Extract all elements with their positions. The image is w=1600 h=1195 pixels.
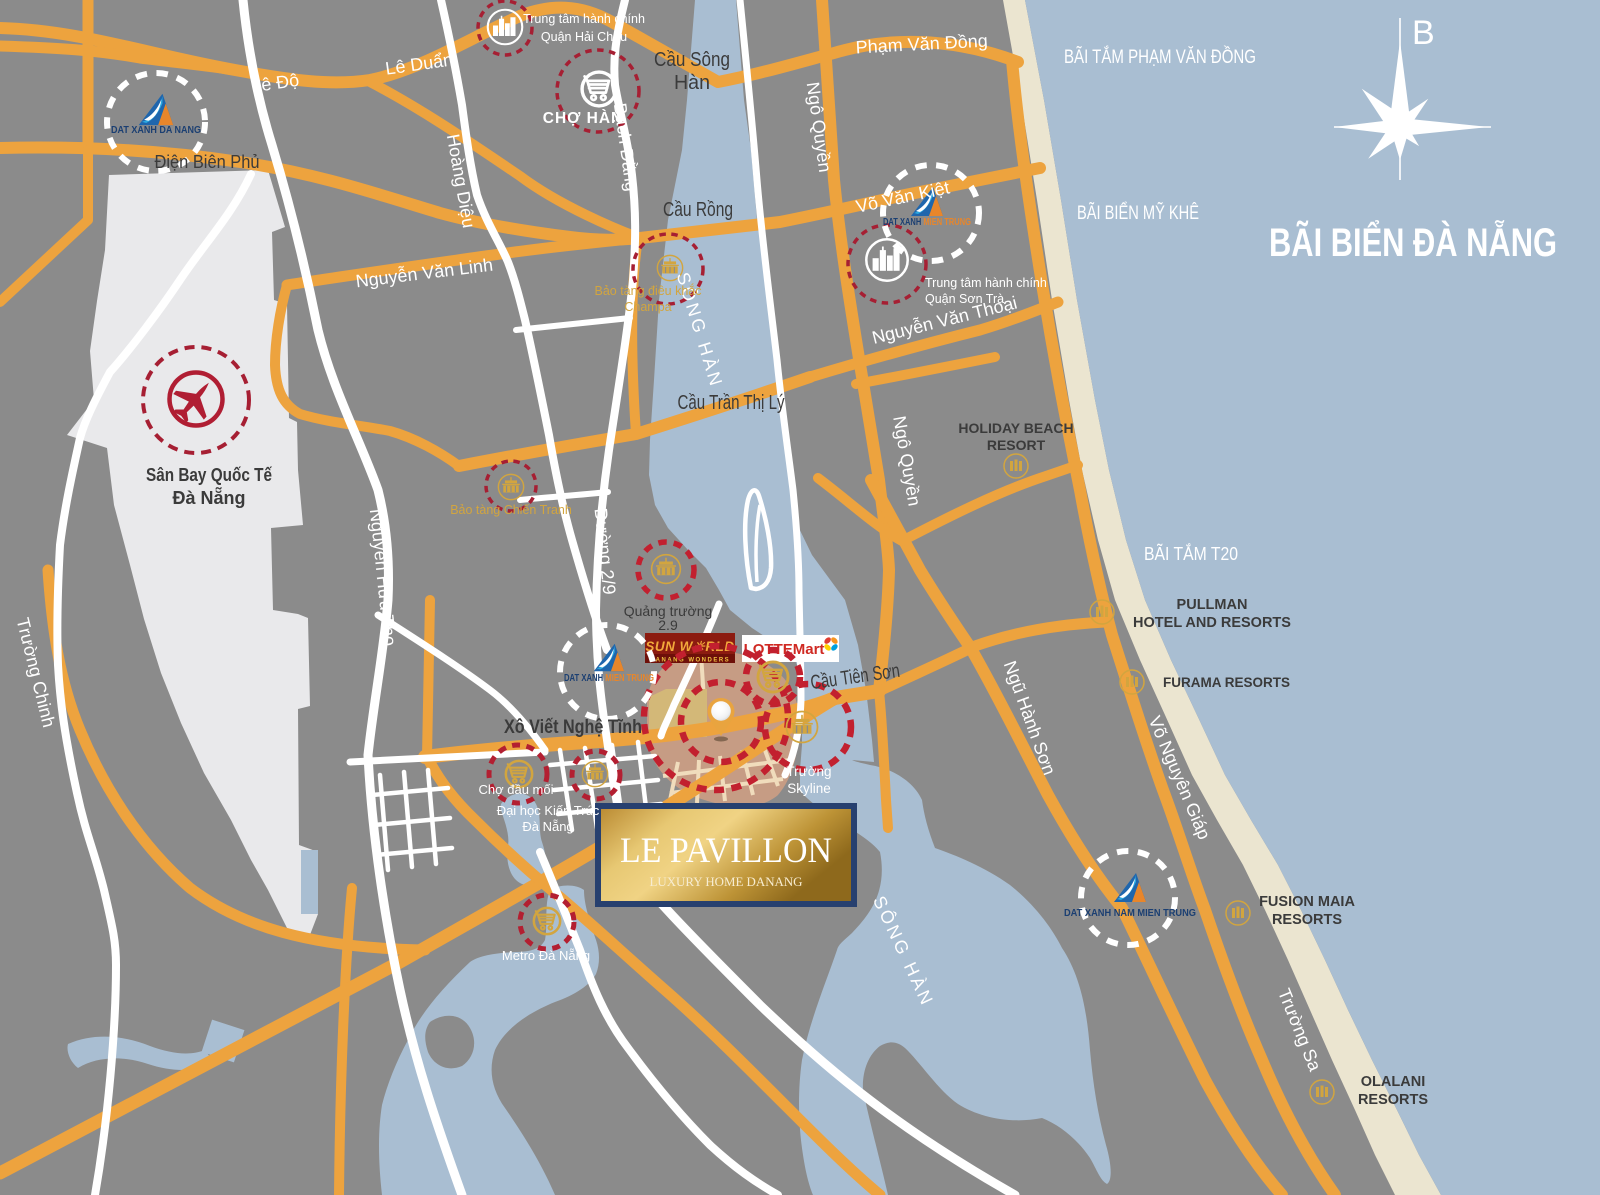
svg-text:CHỢ HÀN: CHỢ HÀN: [543, 110, 624, 127]
svg-text:Trung tâm hành chính: Trung tâm hành chính: [925, 276, 1047, 290]
svg-text:RESORT: RESORT: [987, 437, 1046, 453]
svg-text:RESORTS: RESORTS: [1358, 1092, 1428, 1108]
svg-text:Cầu Rồng: Cầu Rồng: [663, 199, 733, 221]
svg-text:Quận Sơn Trà: Quận Sơn Trà: [925, 292, 1004, 306]
svg-text:FURAMA RESORTS: FURAMA RESORTS: [1163, 675, 1290, 690]
svg-text:Metro Đà Nẵng: Metro Đà Nẵng: [502, 948, 590, 963]
svg-text:DAT XANH DA NANG: DAT XANH DA NANG: [111, 124, 201, 136]
svg-text:DAT XANH MIEN TRUNG: DAT XANH MIEN TRUNG: [564, 673, 654, 684]
svg-text:Chợ đầu mối: Chợ đầu mối: [478, 782, 553, 797]
svg-text:DANANG WONDERS: DANANG WONDERS: [650, 658, 730, 664]
svg-text:DAT XANH NAM MIEN TRUNG: DAT XANH NAM MIEN TRUNG: [1064, 907, 1196, 919]
svg-text:RESORTS: RESORTS: [1272, 912, 1342, 928]
svg-text:LE PAVILLON: LE PAVILLON: [620, 830, 832, 870]
svg-text:HOTEL AND RESORTS: HOTEL AND RESORTS: [1133, 615, 1291, 631]
svg-text:Trung tâm hành chính: Trung tâm hành chính: [523, 12, 645, 26]
svg-text:DAT XANH MIEN TRUNG: DAT XANH MIEN TRUNG: [883, 217, 971, 228]
svg-text:B: B: [1412, 14, 1435, 52]
svg-text:SUN W☀RLD: SUN W☀RLD: [645, 639, 734, 654]
svg-text:Skyline: Skyline: [787, 781, 831, 796]
svg-text:PULLMAN: PULLMAN: [1177, 597, 1248, 613]
svg-text:BÃI TẮM T20: BÃI TẮM T20: [1144, 543, 1238, 564]
svg-text:Bảo tàng điêu khắc: Bảo tàng điêu khắc: [594, 283, 701, 298]
svg-text:Champa: Champa: [624, 300, 671, 314]
svg-text:Hàn: Hàn: [674, 72, 710, 94]
svg-text:Xô Viết Nghệ Tĩnh: Xô Viết Nghệ Tĩnh: [504, 717, 642, 738]
svg-text:HOLIDAY BEACH: HOLIDAY BEACH: [958, 420, 1073, 436]
svg-text:Trường: Trường: [786, 764, 831, 779]
svg-text:2.9: 2.9: [658, 617, 678, 633]
svg-text:Cầu Sông: Cầu Sông: [654, 49, 730, 71]
svg-text:Điện Biên Phủ: Điện Biên Phủ: [155, 152, 260, 172]
svg-text:Bảo tàng Chiến Tranh: Bảo tàng Chiến Tranh: [450, 503, 572, 517]
svg-text:Đại học Kiến Trúc: Đại học Kiến Trúc: [497, 803, 600, 818]
svg-text:Cầu Trần Thị Lý: Cầu Trần Thị Lý: [678, 392, 785, 414]
svg-text:Đà Nẵng: Đà Nẵng: [522, 819, 573, 834]
svg-text:Đà Nẵng: Đà Nẵng: [172, 486, 245, 508]
svg-text:LUXURY HOME DANANG: LUXURY HOME DANANG: [650, 874, 803, 889]
svg-text:BÃI TẮM PHẠM VĂN ĐỒNG: BÃI TẮM PHẠM VĂN ĐỒNG: [1064, 46, 1256, 68]
svg-text:FUSION MAIA: FUSION MAIA: [1259, 894, 1355, 910]
svg-text:OLALANI: OLALANI: [1361, 1074, 1425, 1090]
svg-text:Sân Bay Quốc Tế: Sân Bay Quốc Tế: [146, 465, 273, 485]
svg-text:BÃI BIỂN MỸ KHÊ: BÃI BIỂN MỸ KHÊ: [1077, 202, 1199, 224]
svg-text:Quận Hải Châu: Quận Hải Châu: [541, 30, 627, 44]
svg-text:BÃI BIỂN ĐÀ NẴNG: BÃI BIỂN ĐÀ NẴNG: [1269, 218, 1557, 265]
